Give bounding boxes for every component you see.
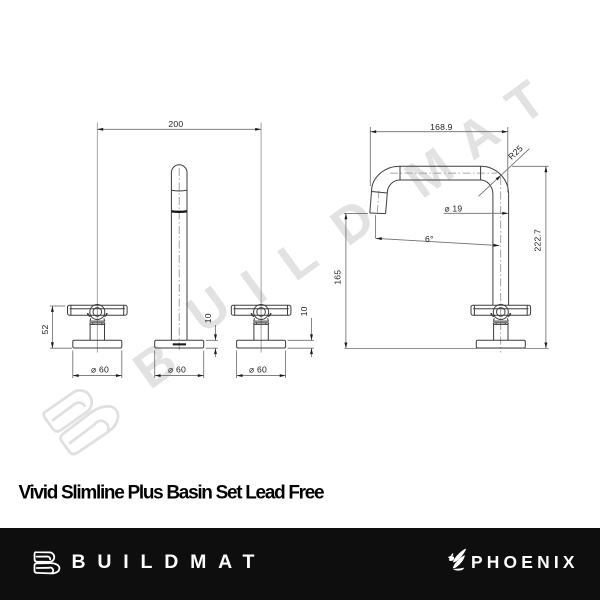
svg-text:I: I xyxy=(231,260,277,315)
svg-text:168.9: 168.9 xyxy=(430,122,453,132)
svg-text:200: 200 xyxy=(168,119,183,129)
svg-text:PHOENIX: PHOENIX xyxy=(471,552,579,572)
svg-text:222.7: 222.7 xyxy=(533,229,543,252)
svg-text:L: L xyxy=(268,227,328,293)
svg-text:10: 10 xyxy=(299,306,309,316)
svg-text:T: T xyxy=(496,70,556,136)
svg-text:BUILDMAT: BUILDMAT xyxy=(72,551,267,573)
svg-text:A: A xyxy=(446,102,510,171)
svg-text:⌀ 60: ⌀ 60 xyxy=(91,365,109,375)
svg-text:R25: R25 xyxy=(506,143,525,161)
svg-text:Vivid Slimline Plus Basin Set: Vivid Slimline Plus Basin Set Lead Free xyxy=(19,483,325,504)
svg-text:⌀ 60: ⌀ 60 xyxy=(168,365,186,375)
svg-text:6°: 6° xyxy=(425,234,434,244)
svg-text:165: 165 xyxy=(333,270,343,285)
svg-text:⌀ 19: ⌀ 19 xyxy=(444,203,462,213)
svg-text:⌀ 60: ⌀ 60 xyxy=(249,365,267,375)
svg-text:52: 52 xyxy=(40,325,50,335)
svg-text:10: 10 xyxy=(203,313,213,323)
